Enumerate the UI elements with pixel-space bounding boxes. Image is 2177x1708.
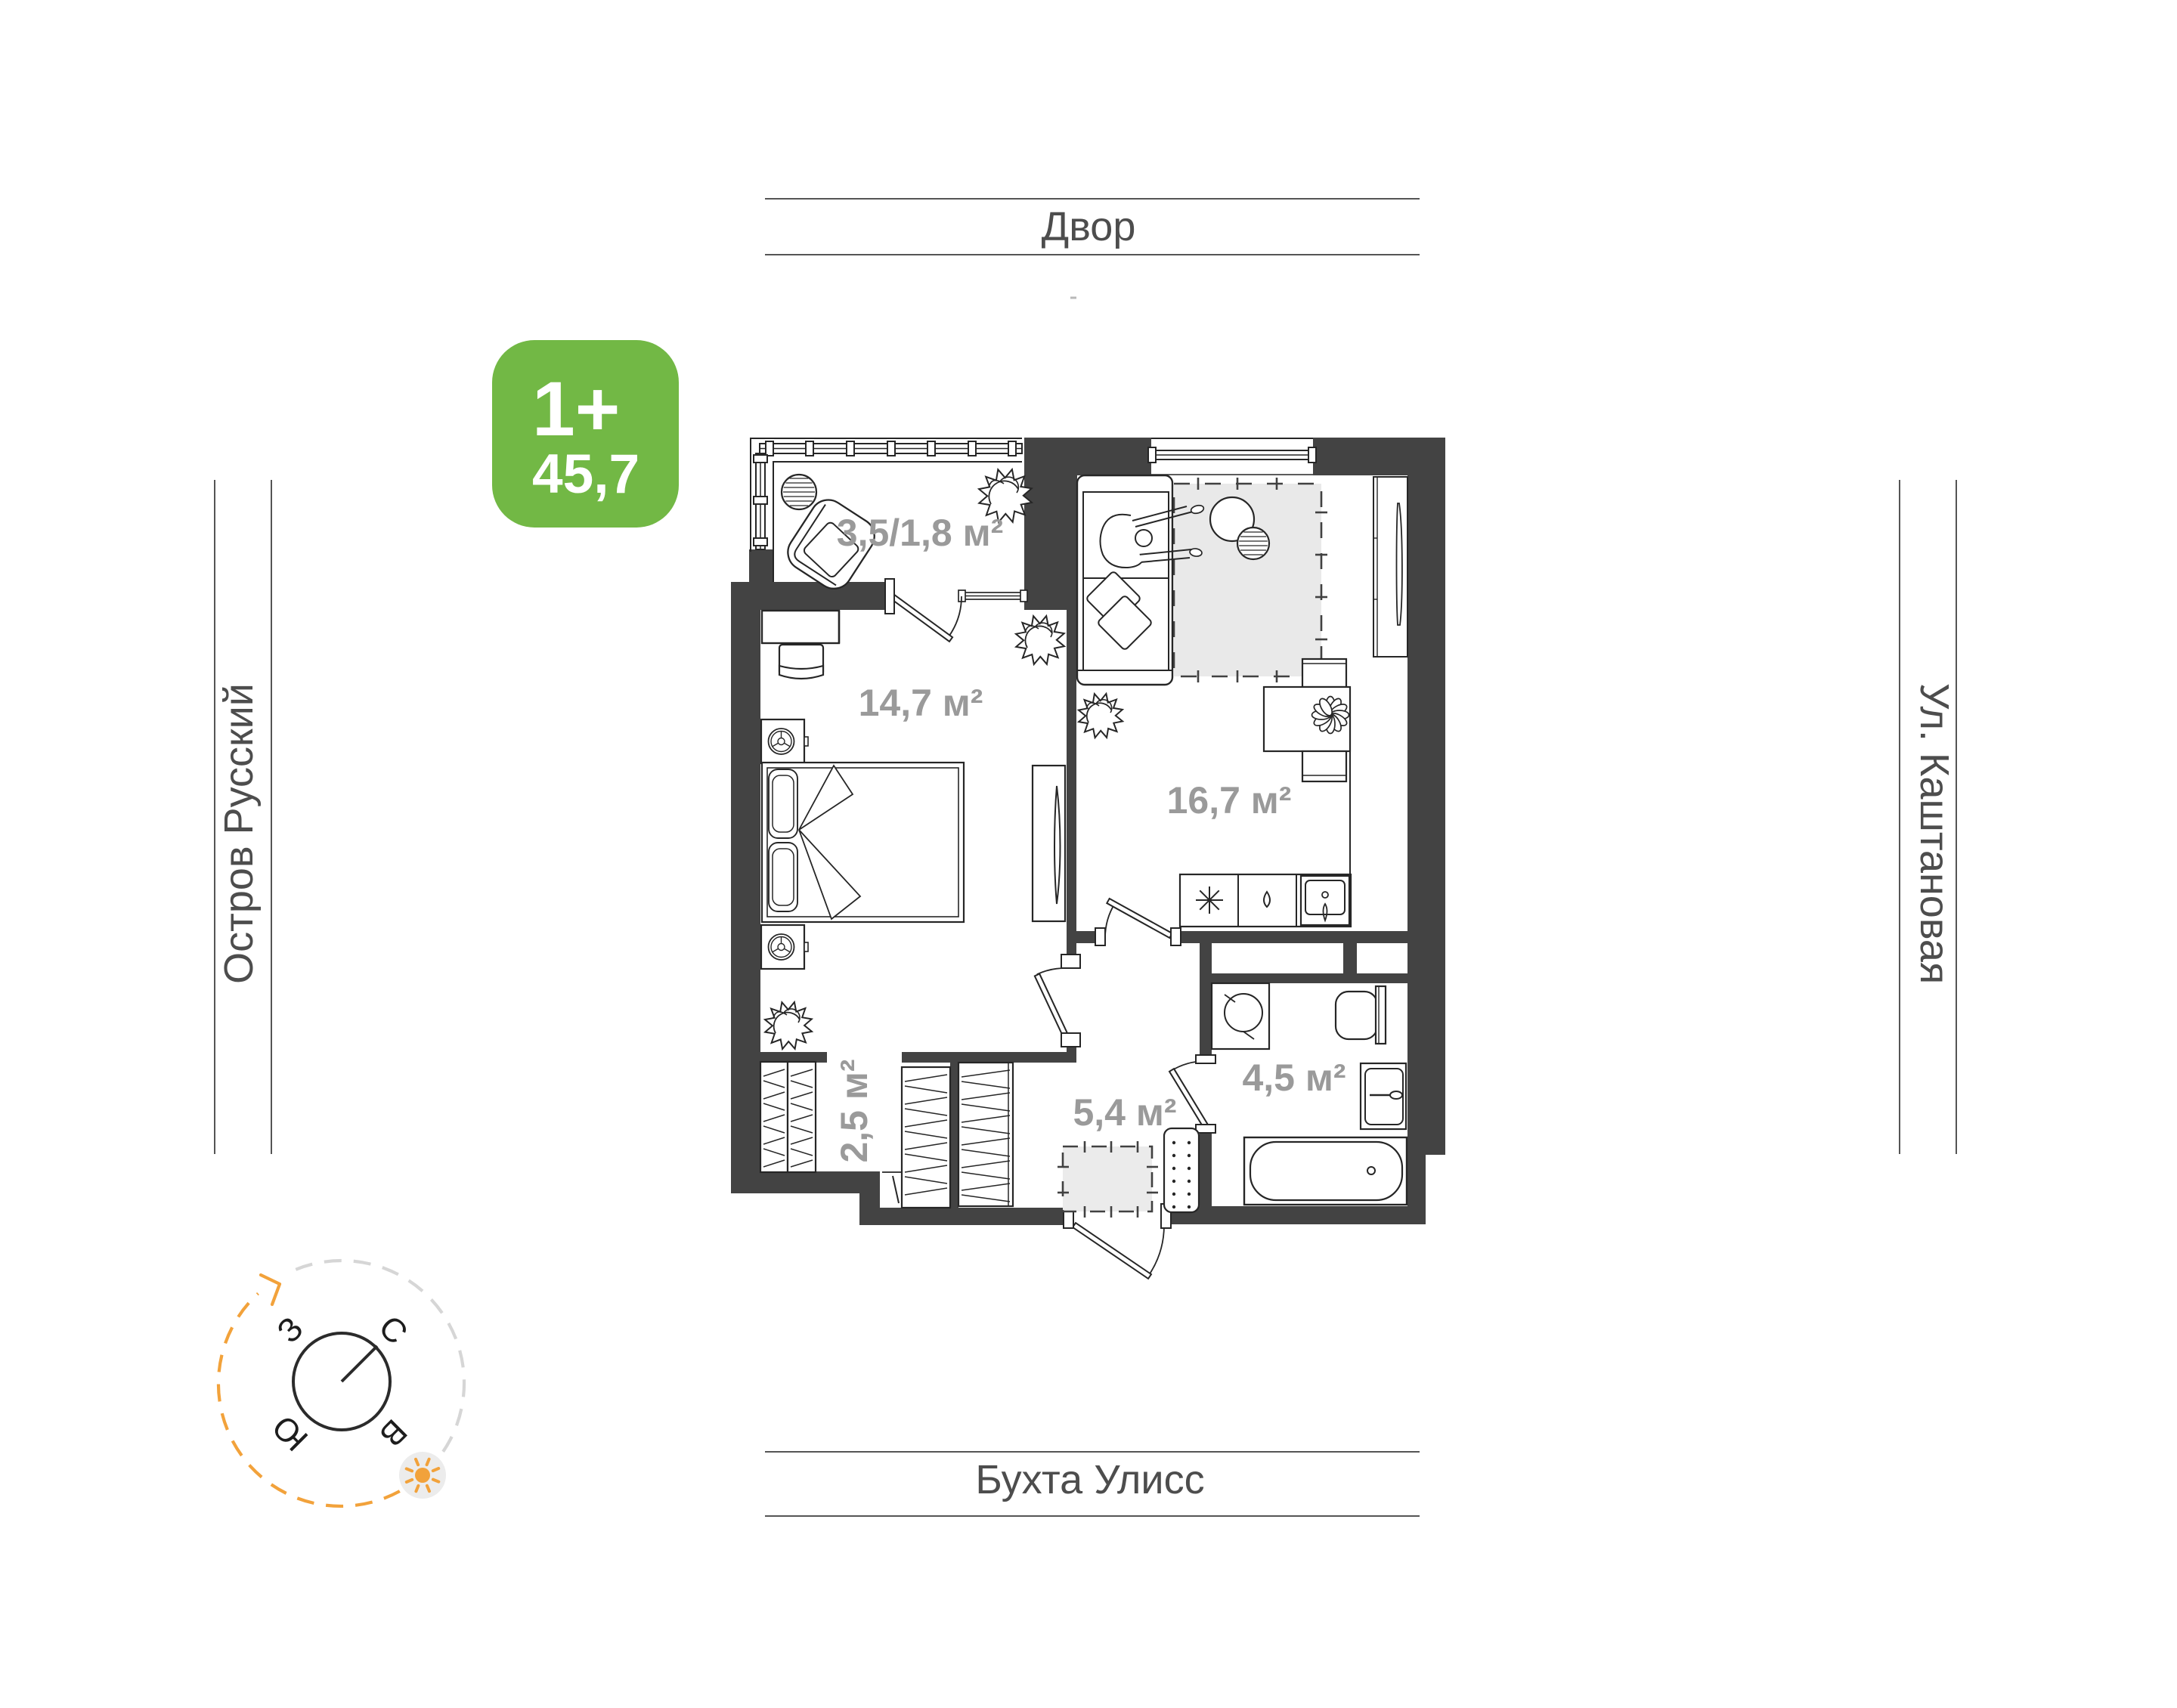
svg-text:3,5/1,8 м²: 3,5/1,8 м²	[837, 512, 1003, 554]
svg-text:5,4 м²: 5,4 м²	[1073, 1091, 1176, 1134]
svg-text:З: З	[270, 1310, 310, 1350]
svg-text:4,5 м²: 4,5 м²	[1242, 1057, 1346, 1099]
svg-text:45,7: 45,7	[532, 444, 639, 505]
svg-text:2,5 м²: 2,5 м²	[833, 1059, 875, 1162]
svg-text:С: С	[371, 1308, 414, 1351]
svg-text:Двор: Двор	[1042, 204, 1136, 249]
svg-text:1+: 1+	[532, 366, 620, 452]
svg-text:Бухта Улисс: Бухта Улисс	[975, 1457, 1204, 1502]
svg-text:Остров Русский: Остров Русский	[216, 683, 262, 984]
svg-text:Ул. Каштановая: Ул. Каштановая	[1912, 683, 1957, 984]
svg-text:В: В	[372, 1412, 413, 1453]
svg-text:16,7 м²: 16,7 м²	[1167, 779, 1292, 822]
svg-text:14,7 м²: 14,7 м²	[859, 682, 983, 724]
